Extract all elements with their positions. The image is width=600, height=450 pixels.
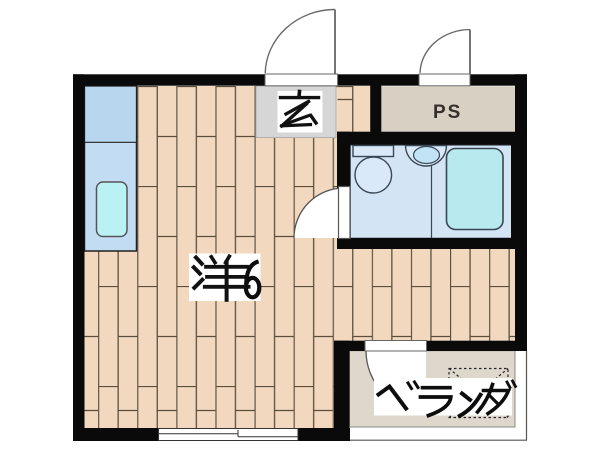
svg-text:PS: PS: [433, 102, 462, 123]
